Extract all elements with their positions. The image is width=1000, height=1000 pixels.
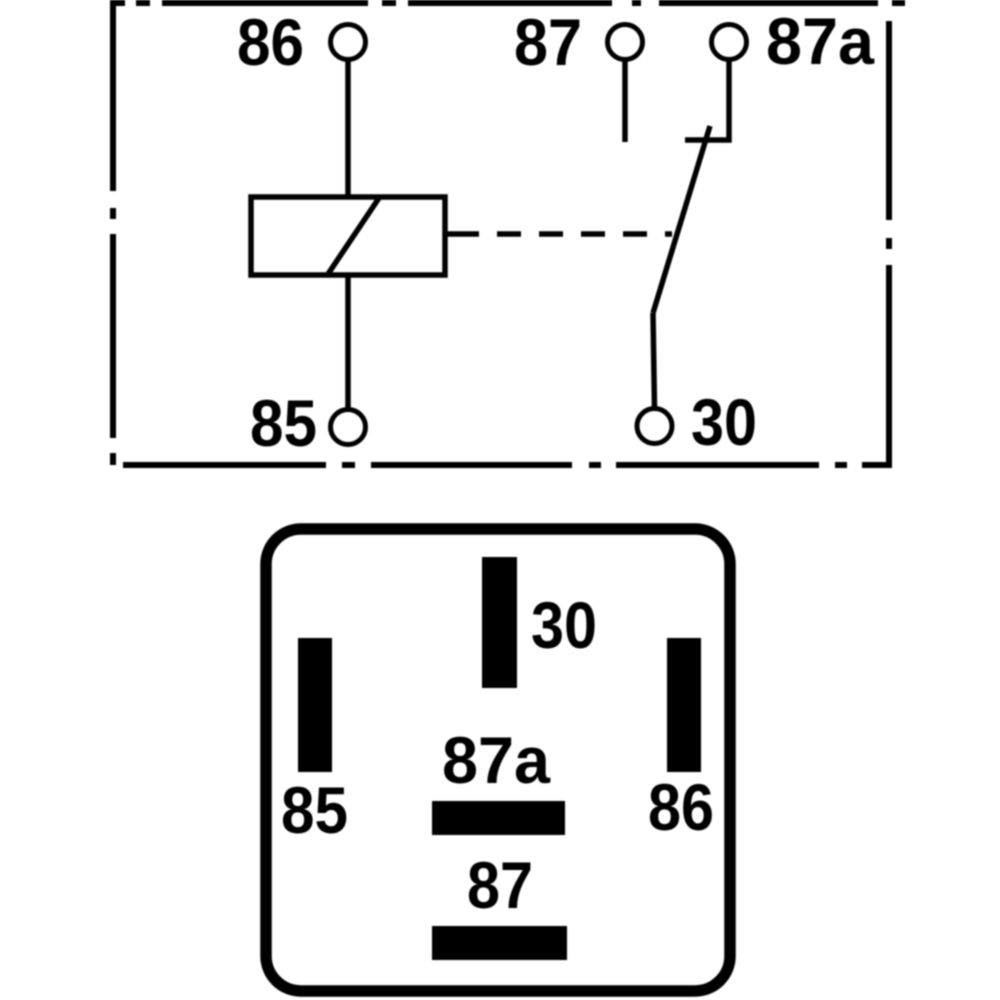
svg-text:87a: 87a [442,723,551,797]
svg-text:87a: 87a [766,4,875,78]
svg-text:86: 86 [648,770,714,844]
svg-text:87: 87 [514,5,582,79]
svg-text:30: 30 [531,588,597,662]
svg-text:30: 30 [691,385,757,459]
svg-text:85: 85 [250,386,317,460]
svg-text:86: 86 [237,5,304,79]
svg-text:87: 87 [467,848,533,922]
svg-text:85: 85 [281,773,348,847]
